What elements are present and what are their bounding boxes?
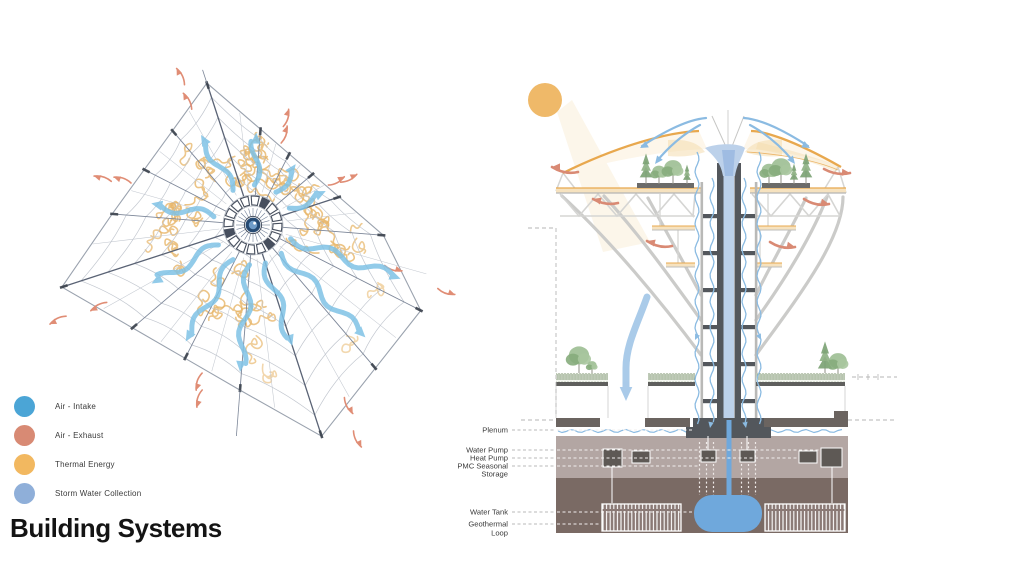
underground-section xyxy=(556,411,848,533)
legend-item-air-exhaust: Air - Exhaust xyxy=(14,425,141,446)
legend-item-air-intake: Air - Intake xyxy=(14,396,141,417)
legend-label: Storm Water Collection xyxy=(55,489,141,498)
tower-section-diagram: PlenumWater PumpHeat PumpPMC SeasonalSto… xyxy=(457,83,897,538)
plan-airflow-diagram xyxy=(50,68,455,447)
pump-unit xyxy=(701,450,716,462)
central-hub xyxy=(223,195,283,255)
pump-unit xyxy=(821,448,842,467)
slide-canvas: PlenumWater PumpHeat PumpPMC SeasonalSto… xyxy=(0,0,1024,571)
section-label: Loop xyxy=(491,529,508,538)
air-intake-arrow-large xyxy=(620,297,647,401)
pump-unit xyxy=(740,450,755,462)
section-labels: PlenumWater PumpHeat PumpPMC SeasonalSto… xyxy=(457,426,508,538)
legend-label: Air - Exhaust xyxy=(55,431,103,440)
storm-water-swatch-icon xyxy=(14,483,35,504)
legend: Air - Intake Air - Exhaust Thermal Energ… xyxy=(14,396,141,512)
pump-unit xyxy=(632,451,650,463)
water-pipe xyxy=(727,420,732,505)
legend-item-storm-water: Storm Water Collection xyxy=(14,483,141,504)
legend-item-thermal-energy: Thermal Energy xyxy=(14,454,141,475)
section-label: Geothermal xyxy=(468,520,508,529)
air-intake-swatch-icon xyxy=(14,396,35,417)
section-label: Water Tank xyxy=(470,508,508,517)
air-exhaust-swatch-icon xyxy=(14,425,35,446)
web-rings xyxy=(62,83,421,436)
structural-spokes xyxy=(60,70,426,438)
legend-label: Thermal Energy xyxy=(55,460,115,469)
page-title: Building Systems xyxy=(10,513,222,544)
building-systems-diagram: PlenumWater PumpHeat PumpPMC SeasonalSto… xyxy=(0,0,1024,571)
pump-unit xyxy=(799,451,817,463)
section-label: Storage xyxy=(481,470,508,479)
storm-water-column xyxy=(724,172,735,430)
section-label: Plenum xyxy=(482,426,508,435)
tower-shaft xyxy=(701,144,758,430)
legend-label: Air - Intake xyxy=(55,402,96,411)
thermal-energy-swatch-icon xyxy=(14,454,35,475)
